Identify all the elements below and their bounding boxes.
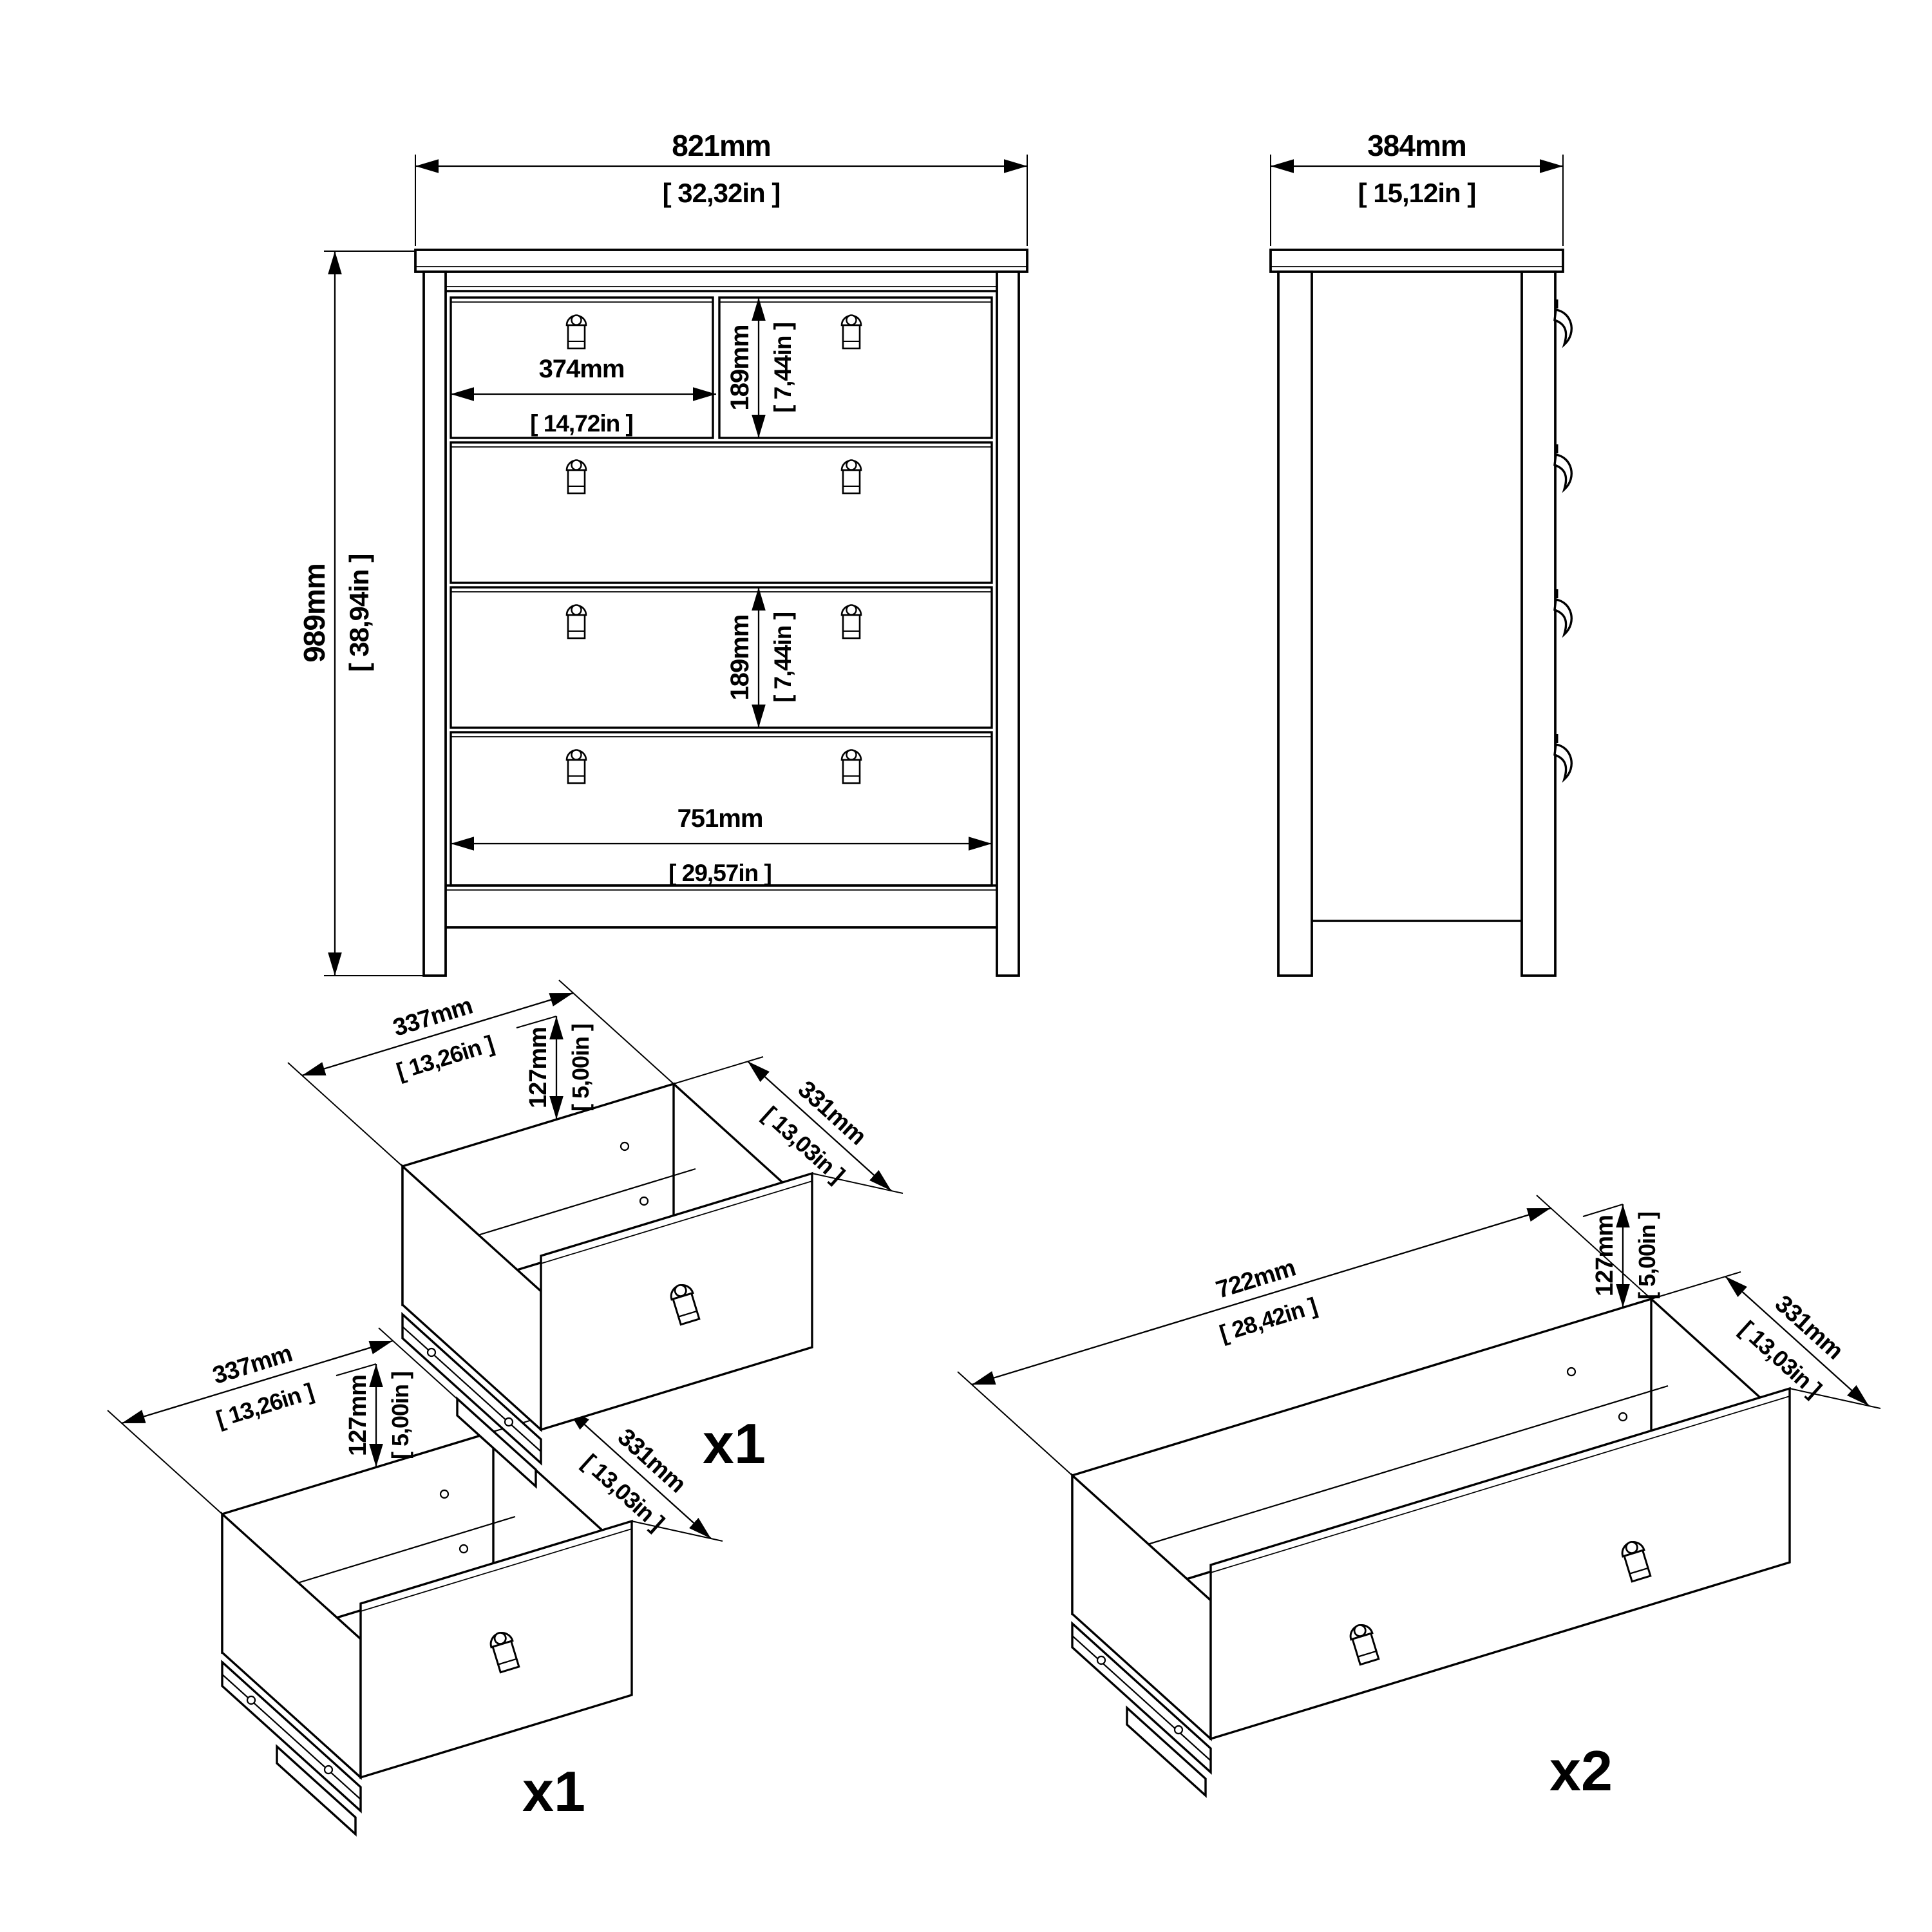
side-front-leg bbox=[1522, 272, 1555, 976]
top-drawer-height-inch-label: [ 7,44in ] bbox=[770, 323, 796, 413]
drawer-pull-icon bbox=[842, 605, 861, 639]
front-height-inch-label: [ 38,94in ] bbox=[344, 554, 374, 672]
screw-hole bbox=[1097, 1656, 1105, 1664]
screw-hole bbox=[1567, 1368, 1575, 1376]
drawer-pull-icon bbox=[567, 460, 586, 494]
screw-hole bbox=[428, 1349, 435, 1356]
mid-drawer-height-mm-label: 189mm bbox=[726, 615, 754, 701]
second-row-drawer-front bbox=[451, 442, 992, 583]
front-right-leg bbox=[997, 272, 1019, 976]
top-drawer-width-mm-label: 374mm bbox=[539, 355, 625, 383]
drawer-c-right-wall-edge bbox=[1651, 1299, 1760, 1397]
front-width-inch-label: [ 32,32in ] bbox=[663, 178, 781, 208]
drawer-c-height-inch-label: [ 5,00in ] bbox=[1634, 1212, 1660, 1300]
front-drawer-fronts bbox=[451, 298, 992, 885]
side-depth-mm-label: 384mm bbox=[1367, 129, 1466, 162]
screw-hole bbox=[460, 1545, 468, 1553]
drawer-pull-icon bbox=[567, 316, 586, 349]
front-height-mm-label: 989mm bbox=[298, 563, 331, 663]
front-overall-height-dimension: 989mm [ 38,94in ] bbox=[298, 251, 424, 976]
front-left-leg bbox=[424, 272, 446, 976]
chest-front-view: 821mm [ 32,32in ] 989mm [ 38,94in ] bbox=[298, 129, 1027, 976]
inner-width-mm-label: 751mm bbox=[677, 804, 763, 833]
drawer-pull-icon bbox=[842, 460, 861, 494]
drawer-b-quantity-label: x1 bbox=[703, 1412, 766, 1475]
drawer-b-depth-dimension: 331mm [ 13,03in ] bbox=[674, 1057, 903, 1193]
pull-profile-icon bbox=[1555, 444, 1571, 489]
front-width-mm-label: 821mm bbox=[672, 129, 771, 162]
front-top-panel bbox=[415, 250, 1027, 272]
drawer-b-height-mm-label: 127mm bbox=[525, 1027, 552, 1108]
drawer-c-height-mm-label: 127mm bbox=[1591, 1215, 1618, 1296]
drawer-pull-icon bbox=[567, 605, 586, 639]
drawer-pull-icon bbox=[567, 750, 586, 784]
screw-hole bbox=[1175, 1726, 1182, 1734]
screw-hole bbox=[440, 1490, 448, 1498]
third-row-drawer-front bbox=[451, 587, 992, 728]
screw-hole bbox=[621, 1142, 629, 1150]
drawer-pull-icon bbox=[842, 750, 861, 784]
pull-profile-icon bbox=[1555, 299, 1571, 345]
screw-hole bbox=[640, 1197, 648, 1205]
drawer-pull-icon bbox=[842, 316, 861, 349]
drawer-c-quantity-label: x2 bbox=[1549, 1739, 1613, 1803]
drawer-c-width-mm-label: 722mm bbox=[1213, 1255, 1298, 1304]
pull-profile-icon bbox=[1555, 734, 1571, 779]
top-drawer-height-mm-label: 189mm bbox=[726, 325, 754, 411]
top-drawer-width-inch-label: [ 14,72in ] bbox=[530, 410, 633, 437]
technical-drawing-canvas: 821mm [ 32,32in ] 989mm [ 38,94in ] bbox=[0, 0, 1932, 1932]
screw-hole bbox=[505, 1418, 513, 1426]
chest-side-view: 384mm [ 15,12in ] bbox=[1271, 129, 1571, 976]
side-top-panel bbox=[1271, 250, 1563, 272]
drawer-b-width-mm-label: 337mm bbox=[390, 992, 475, 1042]
pull-profile-icon bbox=[1555, 589, 1571, 634]
technical-drawing-page: 821mm [ 32,32in ] 989mm [ 38,94in ] bbox=[0, 0, 1932, 1932]
mid-drawer-height-inch-label: [ 7,44in ] bbox=[770, 612, 796, 703]
drawer-c-depth-dimension: 331mm [ 13,03in ] bbox=[1651, 1272, 1880, 1408]
side-depth-dimension: 384mm [ 15,12in ] bbox=[1271, 129, 1563, 246]
drawer-a-width-mm-label: 337mm bbox=[209, 1340, 295, 1390]
drawer-c-height-dimension: 127mm [ 5,00in ] bbox=[1583, 1204, 1660, 1307]
screw-hole bbox=[247, 1696, 255, 1704]
screw-hole bbox=[325, 1766, 332, 1774]
front-overall-width-dimension: 821mm [ 32,32in ] bbox=[415, 129, 1027, 246]
wide-drawer-isometric: 722mm [ 28,42in ] 127mm [ 5,00in ] 331mm… bbox=[958, 1195, 1880, 1803]
small-drawer-b-isometric: 337mm [ 13,26in ] 127mm [ 5,00in ] 331mm… bbox=[288, 980, 903, 1486]
drawer-a-quantity-label: x1 bbox=[522, 1759, 585, 1823]
small-drawer-a-isometric: 337mm [ 13,26in ] 127mm [ 5,00in ] 331mm… bbox=[108, 1328, 723, 1834]
inner-width-inch-label: [ 29,57in ] bbox=[668, 860, 772, 886]
drawer-a-height-mm-label: 127mm bbox=[345, 1375, 372, 1456]
side-back-leg bbox=[1278, 272, 1312, 976]
drawer-b-height-inch-label: [ 5,00in ] bbox=[567, 1024, 594, 1112]
screw-hole bbox=[1619, 1413, 1627, 1421]
side-depth-inch-label: [ 15,12in ] bbox=[1358, 178, 1476, 208]
drawer-a-height-inch-label: [ 5,00in ] bbox=[387, 1372, 413, 1459]
drawer-b-right-wall-edge bbox=[674, 1084, 782, 1182]
